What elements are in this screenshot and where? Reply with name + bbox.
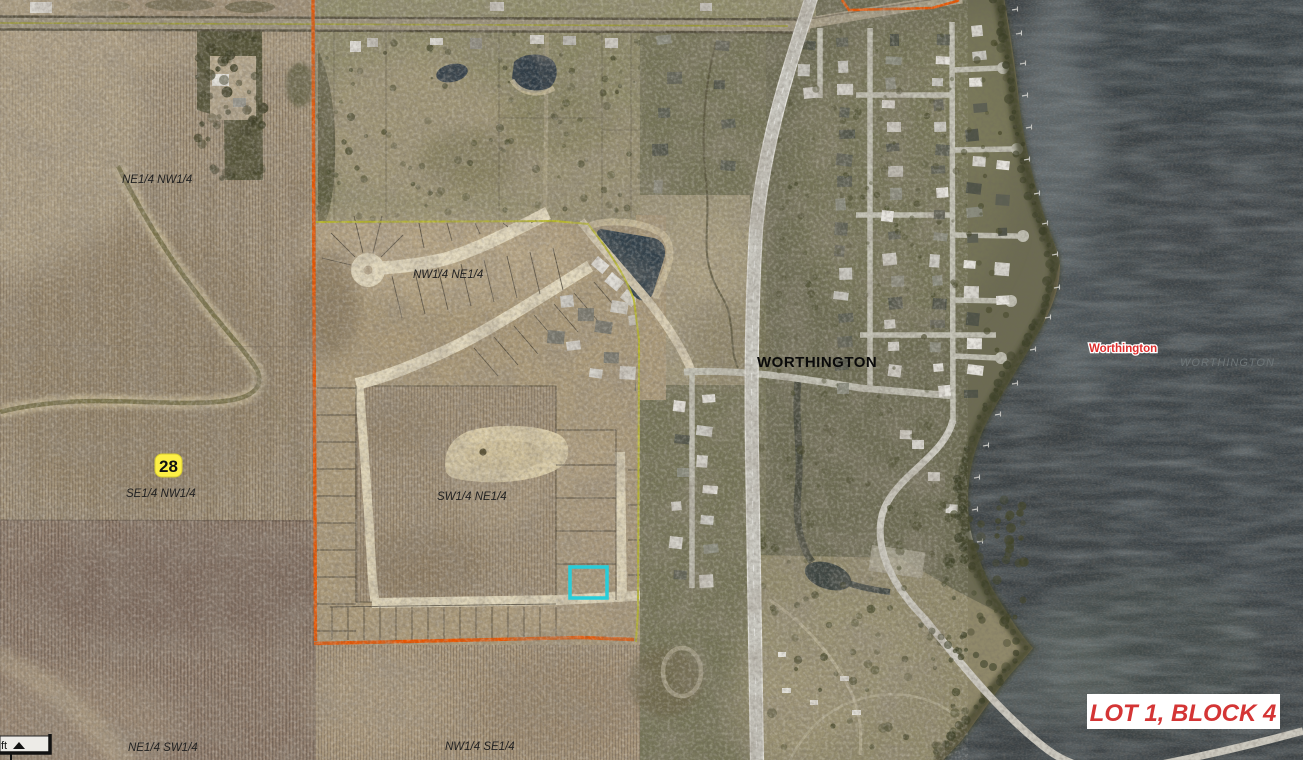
svg-text:WORTHINGTON: WORTHINGTON [757, 354, 877, 371]
svg-text:NE1/4 SW1/4: NE1/4 SW1/4 [128, 742, 198, 754]
svg-text:NW1/4 SE1/4: NW1/4 SE1/4 [445, 741, 515, 753]
svg-text:NE1/4 NW1/4: NE1/4 NW1/4 [122, 174, 192, 186]
svg-text:Worthington: Worthington [1089, 343, 1157, 355]
svg-text:28: 28 [159, 457, 178, 476]
svg-text:WORTHINGTON: WORTHINGTON [1180, 357, 1275, 369]
svg-text:NW1/4 NE1/4: NW1/4 NE1/4 [413, 269, 483, 281]
svg-text:SE1/4 NW1/4: SE1/4 NW1/4 [126, 488, 196, 500]
svg-text:SW1/4 NE1/4: SW1/4 NE1/4 [437, 491, 507, 503]
svg-text:LOT 1, BLOCK 4: LOT 1, BLOCK 4 [1090, 700, 1277, 727]
svg-text:ft: ft [1, 740, 7, 752]
